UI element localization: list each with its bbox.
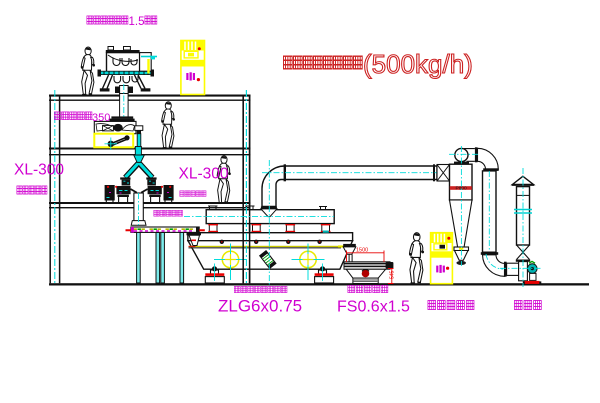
- svg-text:(500kg/h): (500kg/h): [363, 49, 473, 79]
- svg-text:545: 545: [390, 270, 396, 279]
- svg-text:FS0.6x1.5: FS0.6x1.5: [337, 299, 410, 316]
- svg-text:XL-300: XL-300: [179, 166, 229, 183]
- svg-text:XL-300: XL-300: [14, 161, 64, 178]
- svg-text:350: 350: [92, 112, 110, 124]
- svg-text:1500: 1500: [356, 248, 368, 254]
- svg-text:ZLG6x0.75: ZLG6x0.75: [218, 297, 302, 316]
- svg-text:1.5: 1.5: [129, 16, 145, 28]
